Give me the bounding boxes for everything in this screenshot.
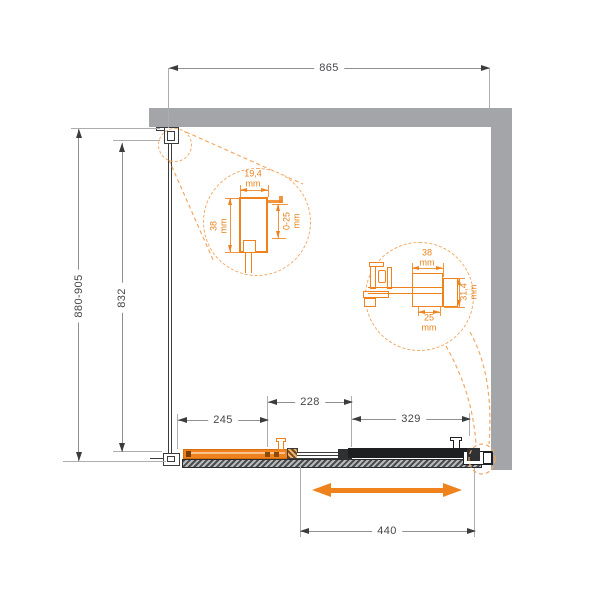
corner-bracket-inner <box>167 456 175 462</box>
technical-drawing-canvas: 865 880-905 832 245 228 329 440 <box>0 0 600 600</box>
extension-line <box>113 140 160 141</box>
detail-profile-notch <box>243 240 256 253</box>
slide-arrow-head-right <box>443 483 462 497</box>
callout-source-circle-left <box>158 128 192 162</box>
detail-rail-mid-block <box>412 273 443 307</box>
glass-panel <box>168 144 172 455</box>
dim-arrow <box>76 452 82 461</box>
extension-line <box>71 128 160 129</box>
detail-roller-bar <box>370 266 376 289</box>
dim-unit: mm <box>469 283 479 301</box>
dim-label-overlap: 228 <box>295 396 325 408</box>
detail-rail-end-block <box>443 278 458 307</box>
slide-arrow-shaft <box>329 488 445 493</box>
detail-rail-foot-block <box>364 298 376 307</box>
dim-arrow <box>467 528 476 534</box>
extension-line <box>63 461 166 462</box>
dim-unit: mm <box>292 212 302 230</box>
panel-fitting-mark <box>265 452 270 457</box>
dim-arrow <box>300 528 309 534</box>
dim-unit: mm <box>422 323 437 333</box>
sliding-door <box>348 448 477 458</box>
dim-label-glass-height: 832 <box>116 283 128 313</box>
dim-arrow <box>344 399 353 405</box>
detail-label-rail-width: 38mm <box>420 249 435 268</box>
wall-top <box>149 108 512 127</box>
dim-arrow <box>178 417 187 423</box>
dim-arrow <box>276 204 280 211</box>
dim-arrow <box>228 198 232 205</box>
slide-arrow-head-left <box>312 483 331 497</box>
detail-label-profile-height: 38mm <box>210 219 229 234</box>
detail-label-adjust-range: 0-25mm <box>283 212 302 230</box>
dim-unit: mm <box>244 179 262 189</box>
dim-arrow <box>436 266 443 270</box>
dim-unit: mm <box>420 258 435 268</box>
fixed-panel-highlight <box>190 452 285 454</box>
detail-ext <box>225 252 239 253</box>
dim-arrow <box>412 266 419 270</box>
detail-profile-flange-tip <box>279 196 283 203</box>
detail-ext <box>272 204 288 205</box>
extension-line <box>489 68 490 110</box>
dim-unit: mm <box>219 219 229 234</box>
panel-fitting-mark <box>274 452 279 457</box>
dim-arrow <box>352 416 361 422</box>
fixed-panel-handle-stem <box>278 441 284 450</box>
detail-dim-line <box>230 198 231 252</box>
extension-line <box>300 466 301 537</box>
panel-fitting-mark <box>186 451 191 457</box>
dim-arrow <box>76 129 82 138</box>
slide-direction-arrow <box>312 483 462 497</box>
detail-ext <box>444 278 465 279</box>
sliding-door-handle-stem <box>453 440 460 449</box>
dim-arrow <box>261 188 268 192</box>
detail-glass-stub <box>245 253 252 273</box>
right-wall-bracket-block <box>467 448 480 461</box>
detail-label-profile-width: 19,4mm <box>244 170 262 189</box>
detail-roller-bar2 <box>387 267 392 289</box>
dim-arrow <box>457 300 461 307</box>
extension-line <box>168 68 169 128</box>
dim-arrow <box>260 417 269 423</box>
dim-arrow <box>119 143 125 152</box>
dim-label-slide-travel: 440 <box>372 525 402 537</box>
detail-label-inner-width: 25mm <box>422 314 437 333</box>
dim-label-fixed-panel: 245 <box>208 414 238 426</box>
dim-arrow <box>481 65 490 71</box>
fixed-panel <box>183 449 296 459</box>
dim-label-height-range: 880-905 <box>73 269 85 322</box>
wall-right <box>491 108 512 470</box>
dim-arrow <box>119 443 125 452</box>
dim-label-width-top: 865 <box>314 62 344 74</box>
dim-arrow <box>169 65 178 71</box>
dim-label-door-panel: 329 <box>396 413 426 425</box>
dim-arrow <box>462 416 471 422</box>
bottom-track <box>182 459 482 468</box>
right-wall-bracket-end <box>483 452 492 464</box>
dim-arrow <box>228 245 232 252</box>
dim-arrow <box>268 399 277 405</box>
detail-ext <box>444 307 465 308</box>
detail-label-rail-height: 31,4mm <box>460 283 479 301</box>
extension-line <box>474 468 475 537</box>
detail-roller-wheel <box>378 270 386 283</box>
dim-arrow <box>276 231 280 238</box>
